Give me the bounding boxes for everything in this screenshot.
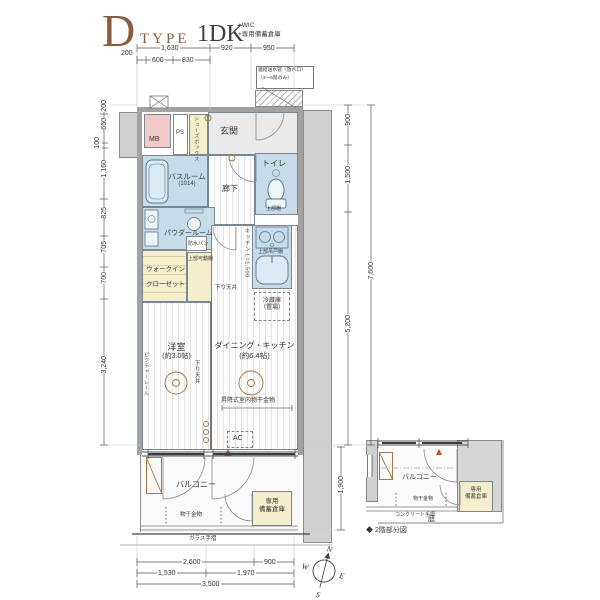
sub-private-storage-label: 専用 備蓄倉庫 <box>459 487 493 500</box>
dim-right-5200: 5,200 <box>344 315 353 333</box>
hatch-area-top <box>255 90 303 107</box>
dim-left-825: 825 <box>100 207 109 219</box>
drying-hardware-label: 物干金物 <box>180 512 202 519</box>
balcony-label: バルコニー <box>176 480 216 490</box>
fridge-label: 冷蔵庫 （置場） <box>254 298 290 312</box>
dining-kitchen-size: (約6.4帖) <box>211 351 298 360</box>
dim-left-1160: 1,160 <box>100 160 109 178</box>
sub-wall-left <box>366 440 378 502</box>
dim-bottom-1970: 1,970 <box>236 570 256 577</box>
private-storage-label: 専用 備蓄倉庫 <box>252 498 292 514</box>
powder-room-label: パウダールーム <box>164 230 213 238</box>
dining-kitchen-name: ダイニング・キッチン <box>211 341 298 351</box>
dim-left-200: 200 <box>100 100 109 112</box>
walk-in-closet <box>142 250 187 302</box>
western-room-name: 洋室 <box>142 342 211 353</box>
wic-label-line1: ウォークイン <box>146 266 185 274</box>
compass-n: N <box>325 544 334 554</box>
bathroom-label: バスルーム (1014) <box>166 172 208 188</box>
dim-top-920: 920 <box>220 45 234 52</box>
sub-drying-hardware-label: 物干金物 <box>413 496 433 502</box>
dim-balcony-1900: 1,900 <box>337 476 346 494</box>
standpipe-note-line1: 連結送水管（放水口） <box>258 68 306 74</box>
garden-label: 庭 <box>428 516 435 524</box>
exterior-mass-topleft <box>119 112 138 158</box>
evacuation-hatch <box>146 457 162 494</box>
compass: N E S W <box>295 539 351 600</box>
dim-top-1630: 1,630 <box>160 45 180 52</box>
entrance-label: 玄関 <box>220 126 238 137</box>
fridge-label-line2: （置場） <box>254 305 290 312</box>
compass-e: E <box>337 571 345 581</box>
dim-left-3240: 3,240 <box>100 356 109 374</box>
corridor-label: 廊下 <box>222 184 238 194</box>
sub-private-storage-line2: 備蓄倉庫 <box>459 494 493 501</box>
dim-left-700: 700 <box>100 272 109 284</box>
plan-extra-storage: +専用備蓄倉庫 <box>238 31 281 39</box>
dim-top-600: 600 <box>151 57 165 64</box>
mb-label: MB <box>149 136 160 144</box>
dim-right-7600: 7,600 <box>367 262 376 280</box>
compass-s: S <box>315 590 321 600</box>
hanging-cupboard-label: 上部吊戸棚 <box>258 249 283 255</box>
page-title-letter: D <box>102 8 135 54</box>
sub-evacuation-hatch <box>379 452 393 480</box>
shoes-box-label: シューズボックス <box>193 116 199 154</box>
dim-bottom-2600: 2,600 <box>182 559 202 566</box>
dim-left-100: 100 <box>93 137 102 149</box>
washer-pan-label: 防水パン <box>188 241 208 247</box>
upper-shelf-label: 上部可動棚 <box>188 256 213 262</box>
sub-balcony-label: バルコニー <box>402 474 437 482</box>
dim-right-1500: 1,500 <box>344 166 353 184</box>
lowered-ceiling-label-h: 下り天井 <box>215 285 237 292</box>
exterior-mass-right <box>303 110 332 543</box>
dim-right-900: 900 <box>344 114 353 126</box>
western-room-size: (約3.0帖) <box>142 353 211 361</box>
dim-left-650: 650 <box>100 118 109 130</box>
sub-evacuation-marker <box>436 449 442 455</box>
floorplan-page: D TYPE 1DK +WIC +専用備蓄倉庫 連結送水管（放水口） （3〜5階… <box>0 0 600 600</box>
standpipe-note-line2: （3〜5階のみ） <box>258 76 292 82</box>
sub-plan-caption: ◆ 2階部分図 <box>366 527 407 535</box>
kitchen-length-label: キッチン L=1,500 <box>243 228 250 288</box>
dim-top-830: 830 <box>181 57 195 64</box>
dim-top-200: 200 <box>120 50 134 57</box>
toilet-label: トイレ <box>262 159 286 169</box>
dim-bottom-900: 900 <box>263 559 277 566</box>
private-storage-line1: 専用 <box>252 498 292 506</box>
lowered-ceiling-label-v: 下り天井 <box>193 360 200 390</box>
glass-rail-label: ガラス手摺 <box>189 536 216 543</box>
kitchen-counter <box>252 225 292 289</box>
bathroom-size: (1014) <box>166 181 208 188</box>
western-room-label: 洋室 (約3.0帖) <box>142 342 211 361</box>
standpipe-note-box: 連結送水管（放水口） （3〜5階のみ） <box>256 66 314 89</box>
dining-kitchen-label: ダイニング・キッチン (約6.4帖) <box>211 341 298 360</box>
wic-label-line2: クローゼット <box>146 281 185 289</box>
ac-label: AC <box>233 435 243 443</box>
drying-unit-label: 昇降式室内物干金物 <box>221 398 275 405</box>
dim-top-950: 950 <box>262 45 276 52</box>
sub-private-storage-line1: 専用 <box>459 487 493 494</box>
western-room <box>142 302 211 450</box>
dim-left-705: 705 <box>100 241 109 253</box>
evacuation-marker <box>224 449 232 456</box>
dim-bottom-3500: 3,500 <box>201 581 221 588</box>
ps-label: PS <box>176 130 184 137</box>
private-storage-line2: 備蓄倉庫 <box>252 506 292 514</box>
bathroom-name: バスルーム <box>166 172 208 181</box>
plan-extra-wic: +WIC <box>238 22 254 30</box>
compass-w: W <box>301 562 311 573</box>
toilet-shelf-label: 上部棚 <box>266 206 281 212</box>
plan-type: 1DK <box>197 22 244 46</box>
dim-bottom-1530: 1,530 <box>157 570 177 577</box>
